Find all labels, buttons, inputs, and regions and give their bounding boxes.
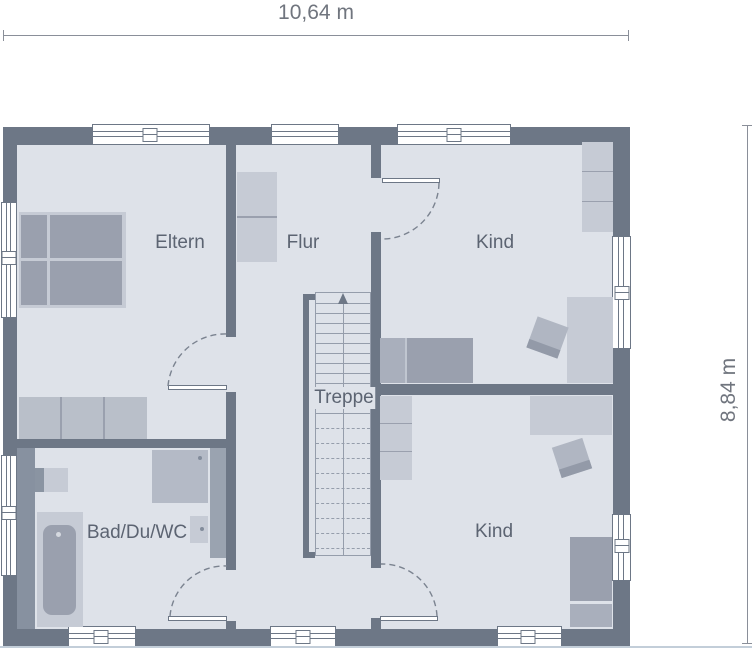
room-label-kind-top: Kind (476, 232, 514, 254)
door-leaf-eltern (168, 385, 227, 390)
stair-rail-cap-top (303, 294, 315, 300)
wardrobe-section (582, 172, 613, 201)
flur-shelf (237, 172, 277, 262)
stairs-direction-arrow-icon (338, 293, 348, 304)
wardrobe-section (380, 452, 412, 480)
window-top-1 (92, 124, 210, 145)
window-opening-symbol (521, 630, 536, 644)
bathtub (43, 525, 76, 615)
wall-flur-left-lower (226, 392, 236, 570)
bad-installation-wall-left (17, 448, 35, 629)
stair-center-line (343, 296, 344, 556)
wc (190, 516, 208, 543)
window-left-2 (1, 455, 17, 576)
window-bottom-1 (68, 626, 136, 647)
kind-bottom-wardrobe-left (380, 396, 412, 480)
kind-bottom-bed-pillow (570, 604, 612, 627)
kind-top-wardrobe (582, 142, 613, 232)
height-dimension-tick-bottom (742, 643, 752, 644)
door-leaf-kind-bottom (380, 616, 438, 621)
washbasin (44, 468, 68, 492)
kind-top-desk (567, 297, 613, 383)
wardrobe-section (582, 202, 613, 232)
bed-pillow (380, 338, 405, 383)
kind-top-bed (380, 338, 473, 383)
room-label-bad: Bad/Du/WC (87, 522, 187, 544)
eltern-wardrobe (19, 397, 147, 439)
wc-detail-dot (200, 527, 204, 531)
shelf-section (237, 218, 277, 262)
width-dimension-tick-right (628, 30, 629, 41)
height-dimension-label: 8,84 m (717, 358, 741, 422)
floor-plan-canvas: 10,64 m 8,84 m (0, 0, 752, 648)
door-leaf-bad (168, 616, 227, 621)
window-bottom-2 (270, 626, 336, 647)
window-bottom-3 (497, 626, 562, 647)
wall-bad-door-stub (226, 621, 236, 629)
wall-eltern-bad (17, 439, 236, 448)
wardrobe-section (105, 397, 147, 439)
room-label-eltern: Eltern (155, 232, 205, 254)
width-dimension-label: 10,64 m (278, 1, 354, 25)
washbasin-wall-part (35, 468, 44, 492)
kind-bottom-wardrobe-top (530, 396, 612, 435)
wardrobe-section (62, 397, 103, 439)
room-label-treppe: Treppe (313, 387, 375, 409)
shower-drain (198, 456, 202, 460)
room-label-kind-bottom: Kind (475, 521, 513, 543)
window-right-1 (612, 236, 631, 349)
bad-installation-wall-right (210, 448, 226, 558)
door-leaf-kind-top (382, 178, 440, 183)
wall-flur-left-upper (226, 145, 236, 337)
wall-flur-right-upper (371, 145, 381, 178)
width-dimension-line (4, 35, 629, 36)
window-opening-symbol (2, 251, 17, 265)
window-opening-symbol (296, 630, 311, 644)
stair-rail-wall (303, 294, 309, 558)
wardrobe-section (582, 142, 613, 171)
height-dimension-line (747, 125, 748, 644)
bed-mattress (50, 215, 122, 258)
bed-pillow (21, 215, 47, 258)
height-dimension-tick-top (742, 125, 752, 126)
window-opening-symbol (2, 506, 17, 520)
kind-bottom-bed (570, 537, 612, 601)
wall-kind-divider (371, 384, 613, 395)
bed-mattress (50, 261, 122, 305)
window-opening-symbol (447, 128, 462, 142)
shelf-section (237, 172, 277, 216)
window-opening-symbol (614, 539, 629, 553)
eltern-bed (19, 212, 126, 308)
window-opening-symbol (142, 128, 157, 142)
bed-pillow (21, 261, 47, 305)
room-label-flur: Flur (287, 232, 320, 254)
stair-rail-cap-bottom (303, 552, 315, 558)
window-left-1 (1, 202, 17, 318)
wardrobe-section (380, 396, 412, 423)
window-right-2 (612, 514, 631, 581)
bed-mattress (407, 338, 473, 383)
window-top-3 (397, 124, 511, 145)
window-top-2 (271, 124, 339, 145)
width-dimension-tick-left (3, 30, 4, 41)
bathtub-drain (56, 532, 61, 537)
window-opening-symbol (93, 630, 108, 644)
window-opening-symbol (614, 286, 629, 300)
wardrobe-section (380, 424, 412, 451)
wardrobe-section (19, 397, 60, 439)
